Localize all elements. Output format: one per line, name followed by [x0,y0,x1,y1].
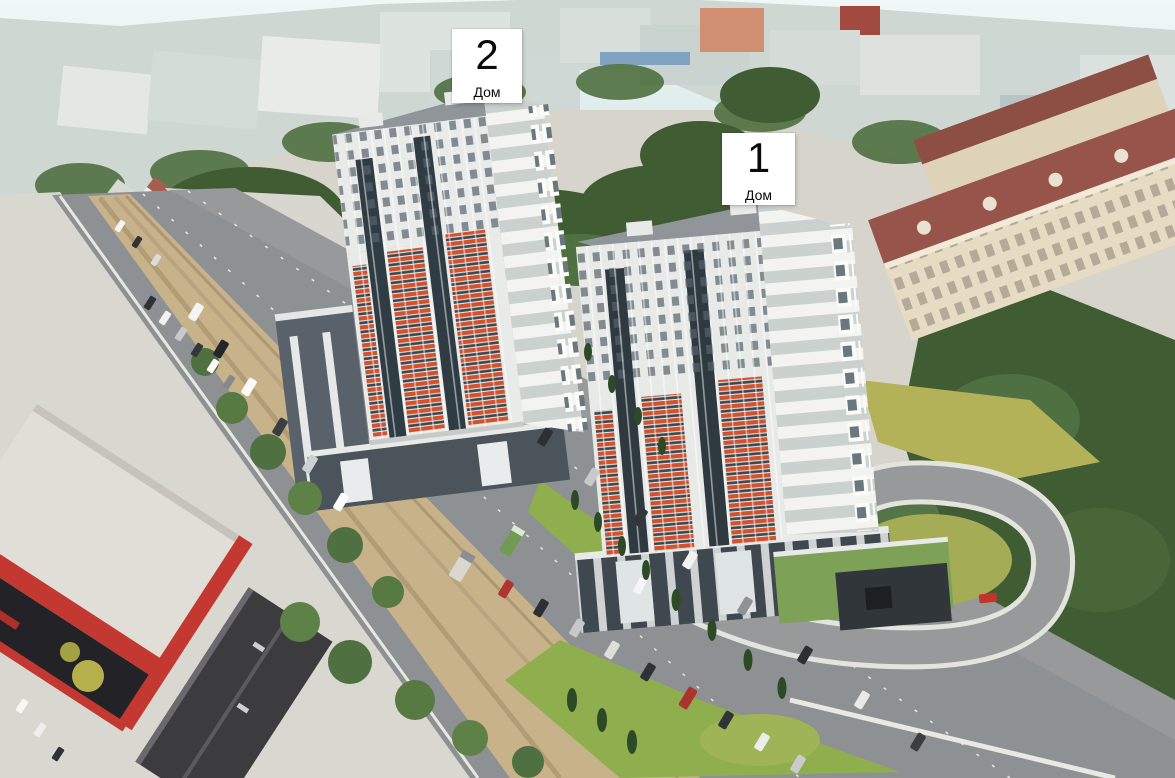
red-car-driveway [979,593,998,604]
label-building-1-caption: Дом [745,188,772,202]
building-1-tower [573,191,879,556]
label-building-2-caption: Дом [473,85,500,99]
aerial-rendering: 2 Дом 1 Дом [0,0,1175,778]
building-2-tower [329,80,589,458]
yellow-tree [72,660,104,692]
label-building-1: 1 Дом [722,133,795,205]
label-building-1-number: 1 [747,137,770,179]
label-building-2: 2 Дом [452,29,522,103]
label-building-2-number: 2 [475,34,498,76]
scene-svg [0,0,1175,778]
